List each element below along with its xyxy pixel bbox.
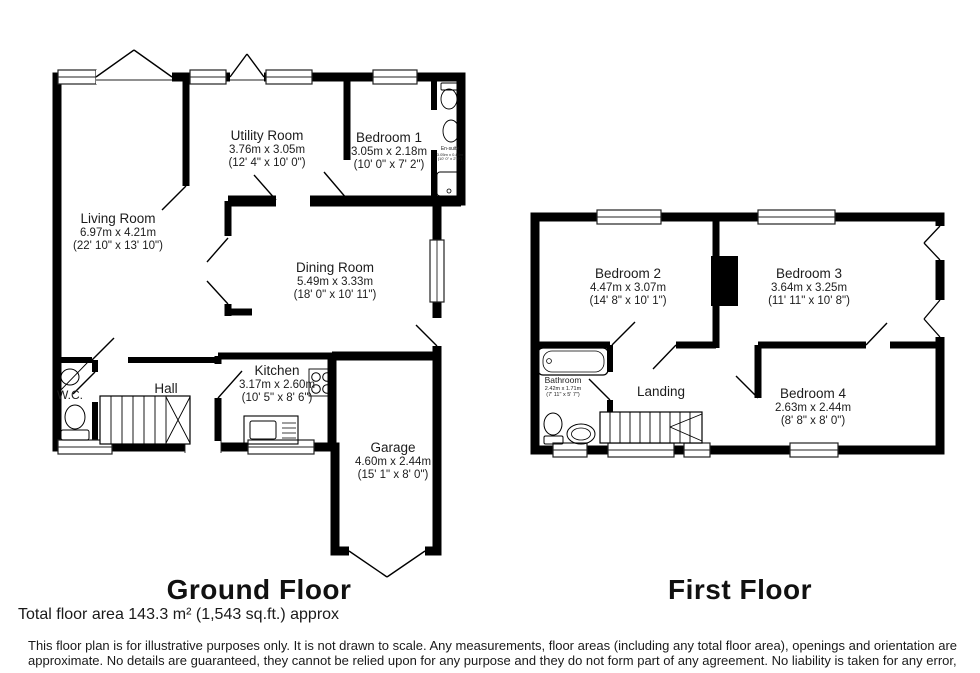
room-dim-metric: 4.60m x 2.44m — [355, 456, 431, 469]
room-name: Landing — [637, 384, 685, 400]
dining-door-gap — [276, 194, 310, 208]
room-name: Bathroom — [545, 376, 582, 386]
room-label-bedroom-2: Bedroom 2 4.47m x 3.07m (14' 8" x 10' 1"… — [589, 266, 666, 308]
room-name: Living Room — [73, 211, 163, 227]
room-dim-metric: 6.97m x 4.21m — [73, 227, 163, 240]
room-name: Hall — [154, 381, 177, 397]
floorplan-drawing — [0, 0, 980, 673]
total-floor-area-note: Total floor area 143.3 m² (1,543 sq.ft.)… — [18, 606, 339, 624]
room-dim-imperial: (22' 10" x 13' 10") — [73, 240, 163, 253]
room-label-bedroom-4: Bedroom 4 2.63m x 2.44m (8' 8" x 8' 0") — [775, 386, 851, 428]
room-name: Bedroom 1 — [351, 130, 427, 146]
room-name: Kitchen — [239, 363, 315, 379]
room-dim-imperial: (12' 4" x 10' 0") — [228, 157, 305, 170]
room-dim-imperial: (18' 0" x 10' 11") — [294, 289, 377, 302]
room-dim-metric: 3.05m x 2.18m — [351, 146, 427, 159]
room-name: Dining Room — [294, 260, 377, 276]
room-dim-imperial: (14' 8" x 10' 1") — [589, 295, 666, 308]
room-label-dining-room: Dining Room 5.49m x 3.33m (18' 0" x 10' … — [294, 260, 377, 302]
room-label-bedroom-3: Bedroom 3 3.64m x 3.25m (11' 11" x 10' 8… — [768, 266, 850, 308]
ground-floor-title: Ground Floor — [167, 574, 352, 606]
room-dim-metric: 5.49m x 3.33m — [294, 276, 377, 289]
room-dim-imperial: (10' 0" x 7' 2") — [351, 159, 427, 172]
room-dim-imperial: (10' 0" x 2' 9") — [437, 157, 463, 162]
first-floor-title: First Floor — [668, 574, 812, 606]
room-dim-metric: 3.76m x 3.05m — [228, 144, 305, 157]
garage-doors — [349, 545, 425, 577]
room-label-bathroom: Bathroom 2.42m x 1.71m (7' 11" x 5' 7") — [545, 376, 582, 399]
room-label-en-suite: En-suite 3.05m x 0.84m (10' 0" x 2' 9") — [437, 147, 463, 162]
room-name: Bedroom 2 — [589, 266, 666, 282]
disclaimer-line-2: approximate. No details are guaranteed, … — [28, 654, 957, 669]
first-floor-plan — [535, 210, 947, 457]
room-dim-metric: 4.47m x 3.07m — [589, 282, 666, 295]
room-dim-imperial: (11' 11" x 10' 8") — [768, 295, 850, 308]
room-label-landing: Landing — [637, 384, 685, 400]
disclaimer-text: This floor plan is for illustrative purp… — [28, 639, 957, 668]
room-name: Utility Room — [228, 128, 305, 144]
room-dim-metric: 2.63m x 2.44m — [775, 402, 851, 415]
room-label-bedroom-1: Bedroom 1 3.05m x 2.18m (10' 0" x 7' 2") — [351, 130, 427, 172]
room-dim-imperial: (15' 1" x 8' 0") — [355, 469, 431, 482]
room-label-utility-room: Utility Room 3.76m x 3.05m (12' 4" x 10'… — [228, 128, 305, 170]
room-name: Bedroom 4 — [775, 386, 851, 402]
room-name: W.C. — [57, 389, 83, 403]
room-label-garage: Garage 4.60m x 2.44m (15' 1" x 8' 0") — [355, 440, 431, 482]
room-dim-metric: 3.64m x 3.25m — [768, 282, 850, 295]
room-dim-imperial: (8' 8" x 8' 0") — [775, 415, 851, 428]
room-dim-imperial: (10' 5" x 8' 6") — [239, 392, 315, 405]
disclaimer-line-1: This floor plan is for illustrative purp… — [28, 639, 957, 654]
room-name: Garage — [355, 440, 431, 456]
first-staircase — [600, 412, 702, 443]
room-label-hall: Hall — [154, 381, 177, 397]
chimney-breast — [711, 256, 738, 306]
room-label-living-room: Living Room 6.97m x 4.21m (22' 10" x 13'… — [73, 211, 163, 253]
ground-staircase — [100, 396, 190, 444]
first-outer-walls — [535, 217, 940, 450]
room-label-wc: W.C. — [57, 389, 83, 403]
floorplan-page: Living Room 6.97m x 4.21m (22' 10" x 13'… — [0, 0, 980, 673]
room-dim-imperial: (7' 11" x 5' 7") — [545, 392, 582, 398]
room-label-kitchen: Kitchen 3.17m x 2.60m (10' 5" x 8' 6") — [239, 363, 315, 405]
room-name: Bedroom 3 — [768, 266, 850, 282]
room-dim-metric: 3.17m x 2.60m — [239, 379, 315, 392]
